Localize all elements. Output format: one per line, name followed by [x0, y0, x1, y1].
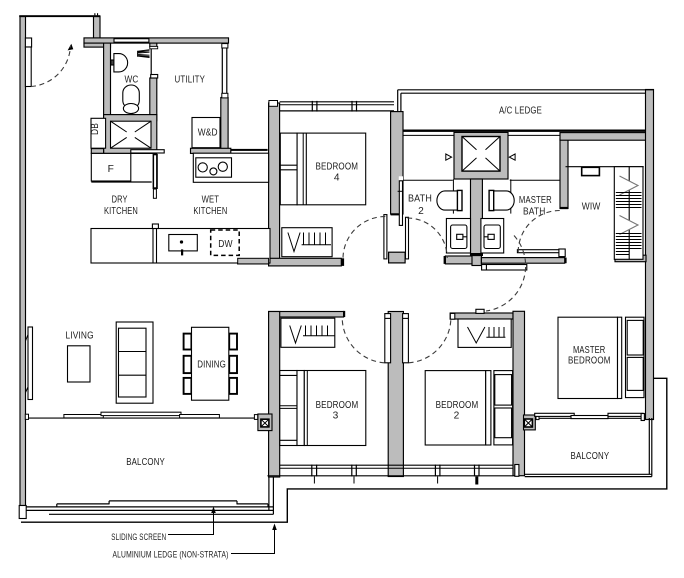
svg-text:3: 3	[333, 411, 339, 422]
svg-text:LIVING: LIVING	[65, 330, 93, 341]
svg-text:2: 2	[454, 411, 460, 422]
svg-text:BALCONY: BALCONY	[571, 451, 610, 462]
svg-text:4: 4	[334, 172, 340, 183]
svg-text:BATH: BATH	[523, 206, 546, 217]
svg-text:W&D: W&D	[198, 128, 218, 139]
svg-text:UTILITY: UTILITY	[175, 75, 206, 86]
svg-text:BEDROOM: BEDROOM	[568, 355, 611, 366]
svg-text:MASTER: MASTER	[519, 195, 552, 206]
svg-text:BATH: BATH	[408, 193, 432, 204]
svg-text:DB: DB	[90, 123, 101, 135]
svg-text:SLIDING SCREEN: SLIDING SCREEN	[111, 532, 166, 542]
svg-text:WC: WC	[125, 74, 139, 85]
svg-text:F: F	[108, 164, 114, 175]
svg-text:BEDROOM: BEDROOM	[315, 161, 358, 172]
svg-text:WET: WET	[202, 195, 220, 206]
svg-text:MASTER: MASTER	[573, 345, 606, 356]
svg-text:BALCONY: BALCONY	[126, 457, 165, 468]
svg-text:WIW: WIW	[582, 201, 601, 212]
svg-text:DRY: DRY	[112, 195, 128, 206]
svg-text:KITCHEN: KITCHEN	[104, 206, 138, 217]
svg-text:ALUMINIUM LEDGE (NON-STRATA): ALUMINIUM LEDGE (NON-STRATA)	[113, 549, 229, 559]
svg-text:A/C LEDGE: A/C LEDGE	[499, 106, 542, 117]
svg-text:DINING: DINING	[197, 360, 226, 371]
svg-text:2: 2	[418, 206, 424, 217]
svg-text:DW: DW	[218, 239, 233, 250]
svg-text:KITCHEN: KITCHEN	[193, 206, 227, 217]
